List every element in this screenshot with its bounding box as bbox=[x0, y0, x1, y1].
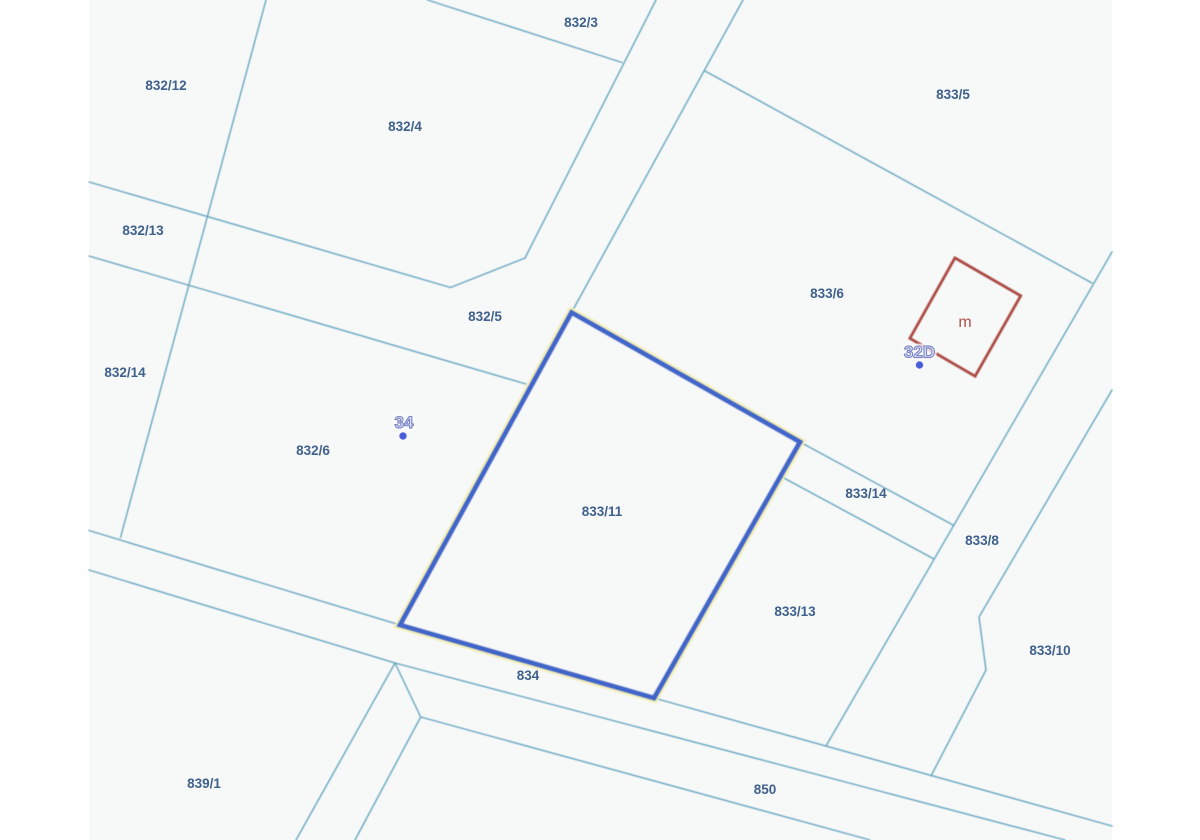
svg-text:833/8: 833/8 bbox=[965, 533, 999, 548]
svg-text:833/6: 833/6 bbox=[810, 286, 844, 301]
svg-text:832/4: 832/4 bbox=[388, 119, 422, 134]
svg-text:850: 850 bbox=[754, 782, 777, 797]
svg-text:834: 834 bbox=[517, 668, 540, 683]
svg-text:832/5: 832/5 bbox=[468, 309, 502, 324]
svg-text:833/10: 833/10 bbox=[1029, 643, 1070, 658]
svg-text:833/14: 833/14 bbox=[845, 486, 887, 501]
svg-text:832/3: 832/3 bbox=[564, 15, 598, 30]
svg-text:833/5: 833/5 bbox=[936, 87, 970, 102]
svg-text:32D: 32D bbox=[904, 343, 935, 362]
svg-text:839/1: 839/1 bbox=[187, 776, 221, 791]
svg-text:832/13: 832/13 bbox=[122, 223, 164, 238]
svg-text:833/11: 833/11 bbox=[582, 504, 623, 519]
svg-text:832/12: 832/12 bbox=[145, 78, 186, 93]
svg-text:34: 34 bbox=[395, 413, 414, 432]
svg-text:832/6: 832/6 bbox=[296, 443, 330, 458]
svg-text:832/14: 832/14 bbox=[104, 365, 146, 380]
svg-text:m: m bbox=[958, 314, 971, 331]
svg-text:833/13: 833/13 bbox=[774, 604, 816, 619]
